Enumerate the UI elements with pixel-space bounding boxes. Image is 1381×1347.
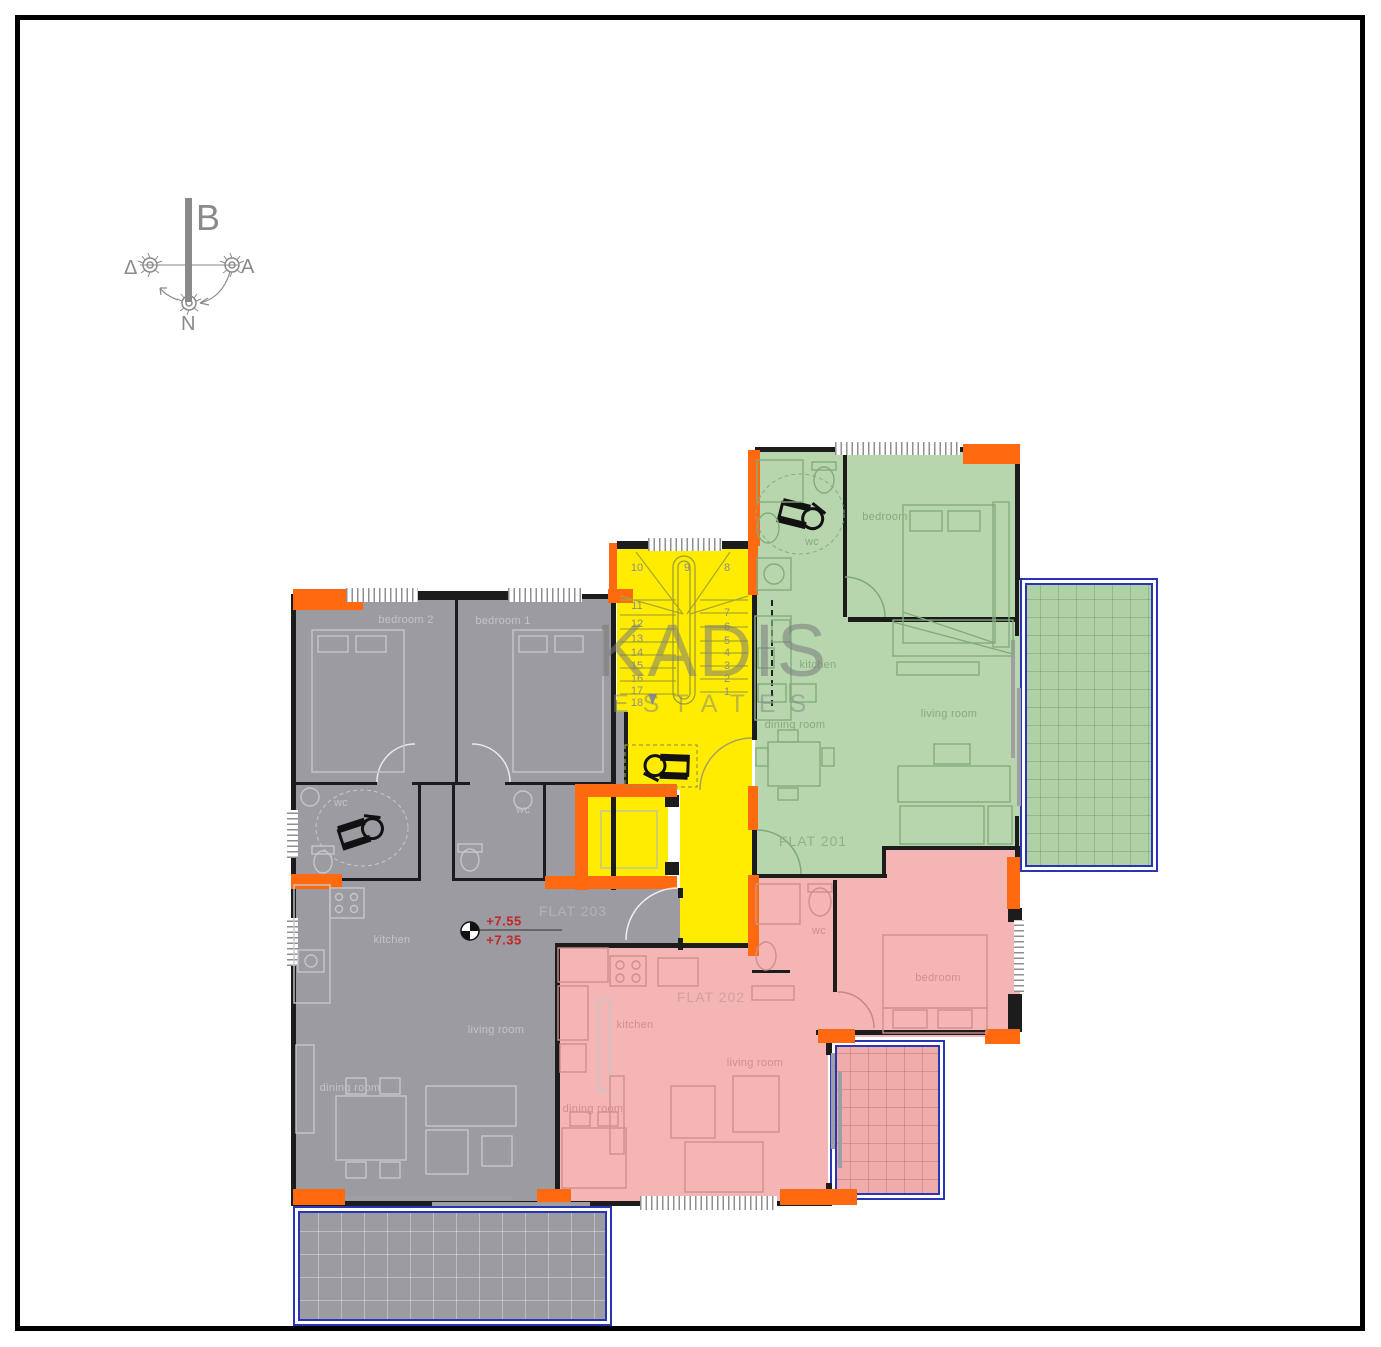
column-orange xyxy=(780,1189,823,1205)
stair-tread-number: 18 xyxy=(631,697,643,709)
stair-tread-number: 16 xyxy=(631,673,643,685)
wall-segment xyxy=(611,594,616,890)
wall-segment xyxy=(665,862,679,875)
flat-202-label: FLAT 202 xyxy=(677,989,745,1005)
stair-tread-number: 8 xyxy=(724,562,730,574)
room-label-wc-gray-2: wc xyxy=(516,804,530,816)
wall-segment xyxy=(882,846,1017,850)
stair-tread-number: 17 xyxy=(631,685,643,697)
room-label-bedroom2: bedroom 2 xyxy=(378,614,433,626)
column-orange xyxy=(609,543,617,595)
wall-segment xyxy=(833,880,837,992)
floor-plan-canvas: B Δ A N xyxy=(0,0,1381,1347)
room-label-dining-gray: dining room xyxy=(320,1082,381,1094)
flat-203-entry-area xyxy=(611,888,683,948)
column-orange xyxy=(545,876,677,889)
stair-tread-number: 4 xyxy=(724,647,730,659)
column-orange xyxy=(748,541,758,595)
wall-segment xyxy=(624,712,628,790)
stair-tread-number: 5 xyxy=(724,635,730,647)
room-label-dining-pink: dining room xyxy=(563,1103,624,1115)
column-orange xyxy=(291,874,342,889)
flat-201-label: FLAT 201 xyxy=(779,833,847,849)
window-hatch xyxy=(346,588,418,602)
room-label-living-green: living room xyxy=(921,708,978,720)
wall-segment xyxy=(543,785,546,881)
window-hatch xyxy=(640,1196,777,1210)
room-label-bedroom1: bedroom 1 xyxy=(475,615,530,627)
column-orange xyxy=(963,444,1020,464)
wall-segment xyxy=(843,452,847,617)
wall-segment xyxy=(752,970,790,973)
stair-tread-number: 12 xyxy=(631,618,643,630)
sliding-door-panel xyxy=(838,1072,842,1168)
room-label-kitchen-gray: kitchen xyxy=(374,934,411,946)
window-hatch xyxy=(835,442,960,455)
stair-tread-number: 11 xyxy=(631,600,642,612)
room-label-wc-pink: wc xyxy=(812,925,826,937)
wall-segment xyxy=(418,785,421,881)
room-label-dining-green: dining room xyxy=(765,719,826,731)
wall-segment xyxy=(291,594,296,1206)
stair-tread-number: 2 xyxy=(724,673,730,685)
elevator-car xyxy=(600,810,658,869)
room-label-kitchen-pink: kitchen xyxy=(617,1019,654,1031)
stair-tread-number: 15 xyxy=(631,660,643,672)
column-orange xyxy=(748,875,759,956)
wall-segment xyxy=(882,850,886,878)
flat-202-area-main xyxy=(557,948,828,1205)
stair-landing-area xyxy=(628,712,752,790)
column-orange xyxy=(748,786,758,830)
flat-202-balcony xyxy=(830,1040,945,1200)
room-label-bedroom-pink: bedroom xyxy=(915,972,961,984)
wall-segment xyxy=(617,541,649,549)
room-label-living-gray: living room xyxy=(468,1024,525,1036)
wall-segment xyxy=(1015,578,1019,636)
stair-tread-number: 6 xyxy=(724,621,730,633)
flat-202-area-step xyxy=(885,850,1020,877)
wall-segment xyxy=(1008,994,1022,1032)
column-orange xyxy=(575,784,677,797)
stair-tread-number: 3 xyxy=(724,660,730,672)
column-orange xyxy=(293,1189,345,1205)
sliding-door-panel xyxy=(1017,688,1021,806)
sliding-door-panel xyxy=(831,1053,835,1149)
wall-segment xyxy=(752,712,757,740)
stair-tread-number: 1 xyxy=(724,686,730,698)
sliding-door-panel xyxy=(432,1202,590,1206)
column-orange xyxy=(1007,857,1020,909)
stair-tread-number: 13 xyxy=(631,633,643,645)
wall-segment xyxy=(291,782,377,785)
wall-segment xyxy=(752,830,757,876)
flat-203-balcony xyxy=(293,1206,612,1326)
room-label-wc-green: wc xyxy=(805,536,819,548)
stair-tread-number: 7 xyxy=(724,607,730,619)
column-orange xyxy=(985,1029,1020,1044)
room-label-wc-gray-1: wc xyxy=(334,797,348,809)
wall-segment xyxy=(752,874,887,878)
wall-segment xyxy=(418,591,510,600)
column-orange xyxy=(818,1189,857,1205)
room-label-bedroom-green: bedroom xyxy=(862,511,908,523)
stair-tread-number: 14 xyxy=(631,647,643,659)
column-orange xyxy=(575,784,588,890)
flat-201-balcony xyxy=(1020,578,1158,872)
wall-segment xyxy=(452,785,455,881)
wall-segment xyxy=(680,943,755,947)
window-hatch xyxy=(648,538,722,551)
room-label-kitchen-green: kitchen xyxy=(800,659,837,671)
flat-203-label: FLAT 203 xyxy=(539,903,607,919)
level-upper-label: +7.55 xyxy=(486,914,521,929)
column-orange xyxy=(748,450,760,546)
window-hatch xyxy=(508,588,582,602)
window-hatch xyxy=(287,918,298,966)
window-hatch xyxy=(1014,920,1024,992)
wall-segment xyxy=(452,878,546,881)
level-lower-label: +7.35 xyxy=(486,933,521,948)
wall-segment xyxy=(848,617,1017,622)
stair-tread-number: 10 xyxy=(631,562,643,574)
column-orange xyxy=(818,1029,855,1043)
wall-segment xyxy=(678,888,683,898)
wall-segment xyxy=(455,600,458,785)
stair-tread-number: 9 xyxy=(684,562,690,574)
sliding-door-panel xyxy=(345,1196,513,1200)
sliding-door-panel xyxy=(1011,640,1015,758)
wall-segment xyxy=(1015,447,1020,580)
room-label-living-pink: living room xyxy=(727,1057,784,1069)
lobby-area xyxy=(680,788,752,948)
window-hatch xyxy=(287,810,298,858)
wall-segment xyxy=(555,943,560,1205)
